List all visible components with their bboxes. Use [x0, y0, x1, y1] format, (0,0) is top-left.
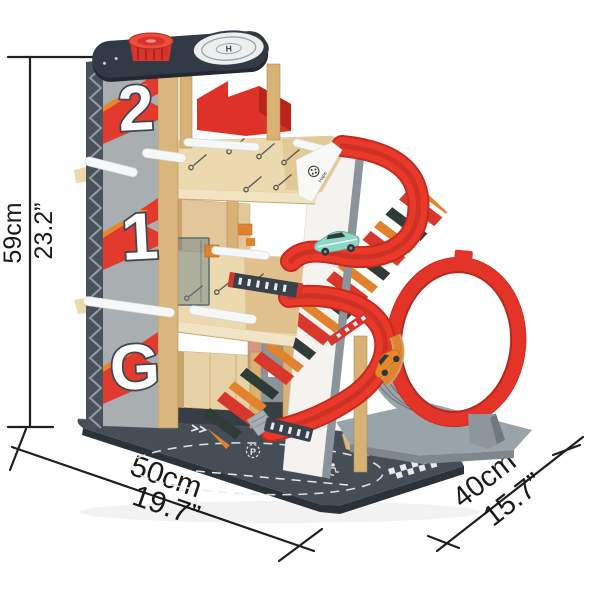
- loop-top-connector: [454, 250, 473, 261]
- height-dimension: 59cm 23.2”: [0, 57, 96, 427]
- level-label-1: 1: [120, 198, 161, 274]
- orange-block: [246, 238, 255, 246]
- width-dimension-right-tick: [279, 529, 322, 561]
- roof-support-post: [267, 64, 280, 140]
- toy-garage-photo: 59cm 23.2” 50cm 19.7” 40cm 15.7”: [0, 0, 600, 600]
- elevator-knob: [129, 33, 173, 61]
- tower: 2 1 G: [86, 60, 178, 430]
- helipad-letter: H: [225, 43, 232, 53]
- orange-bracket: [236, 224, 252, 235]
- level-label-2: 2: [116, 71, 155, 145]
- height-label-inch: 23.2”: [30, 203, 58, 260]
- floor-shadow: [80, 501, 480, 523]
- tower-wood-side: [158, 60, 178, 428]
- level-label-g: G: [108, 330, 161, 405]
- parking-icon: P: [250, 447, 256, 457]
- depth-dimension-right-tick: [553, 445, 580, 455]
- width-dimension-left-tick: [10, 429, 26, 470]
- height-label-cm: 59cm: [0, 202, 27, 263]
- product-screenshot: 59cm 23.2” 50cm 19.7” 40cm 15.7”: [0, 0, 600, 600]
- roof-platform: H: [91, 28, 271, 83]
